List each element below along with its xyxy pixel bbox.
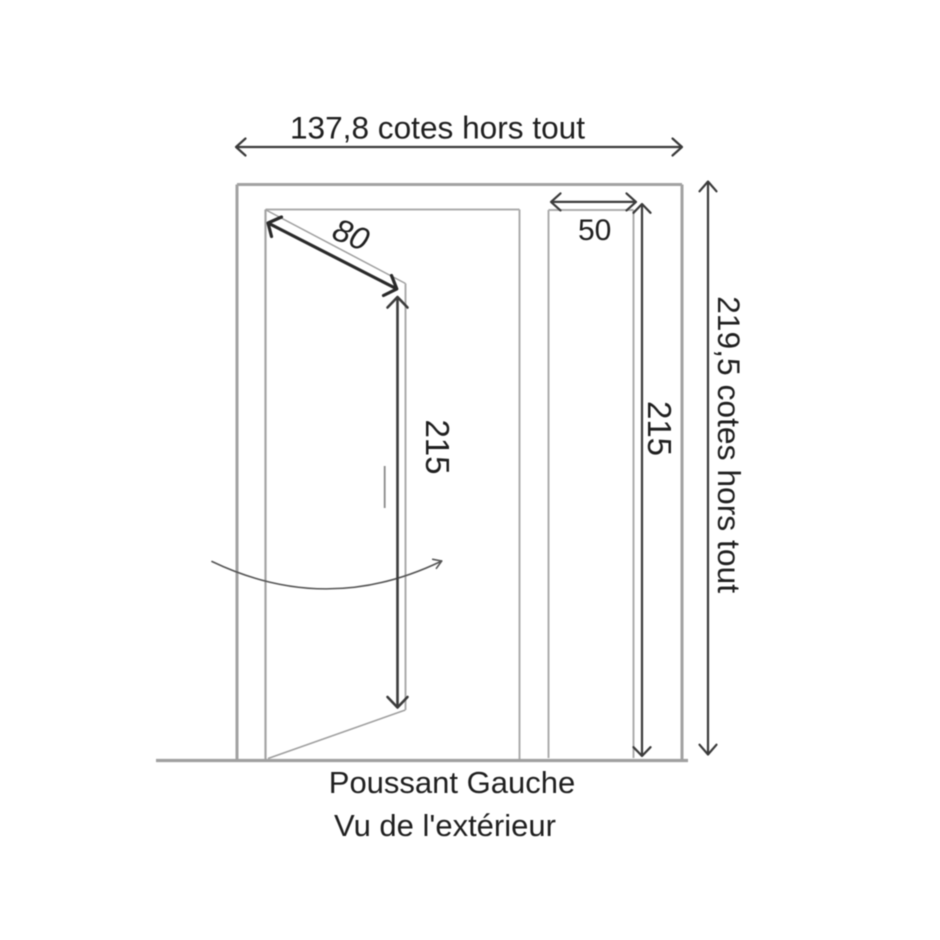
svg-text:215: 215 [641,401,678,456]
svg-text:Vu de l'extérieur: Vu de l'extérieur [334,808,556,843]
svg-text:Poussant Gauche: Poussant Gauche [329,765,575,800]
svg-text:215: 215 [419,419,456,474]
svg-text:219,5 cotes hors tout: 219,5 cotes hors tout [711,296,747,593]
svg-text:137,8 cotes hors tout: 137,8 cotes hors tout [290,110,585,146]
svg-text:50: 50 [578,214,611,247]
